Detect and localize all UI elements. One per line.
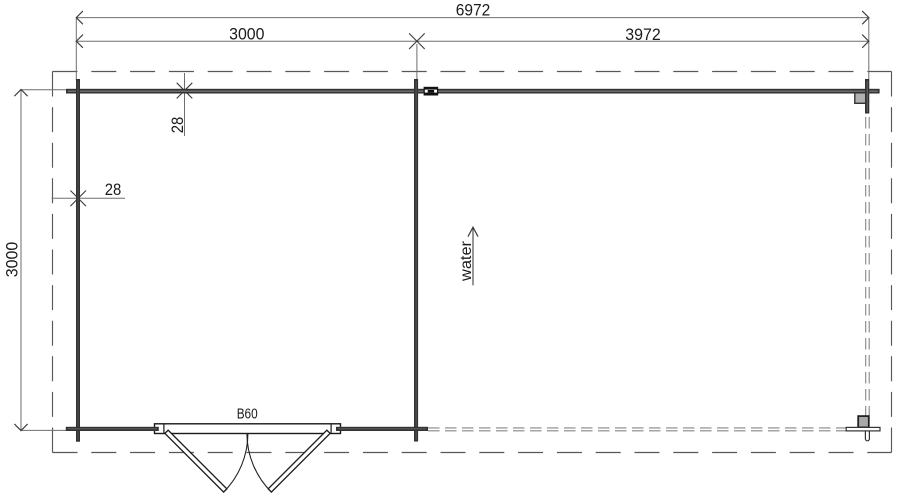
svg-text:B60: B60 — [237, 406, 258, 422]
svg-text:water: water — [458, 240, 475, 282]
svg-text:3972: 3972 — [625, 26, 661, 44]
svg-text:3000: 3000 — [4, 242, 22, 277]
svg-text:28: 28 — [169, 117, 187, 134]
svg-text:28: 28 — [105, 181, 122, 199]
svg-text:3000: 3000 — [229, 26, 264, 44]
svg-text:6972: 6972 — [456, 1, 491, 19]
